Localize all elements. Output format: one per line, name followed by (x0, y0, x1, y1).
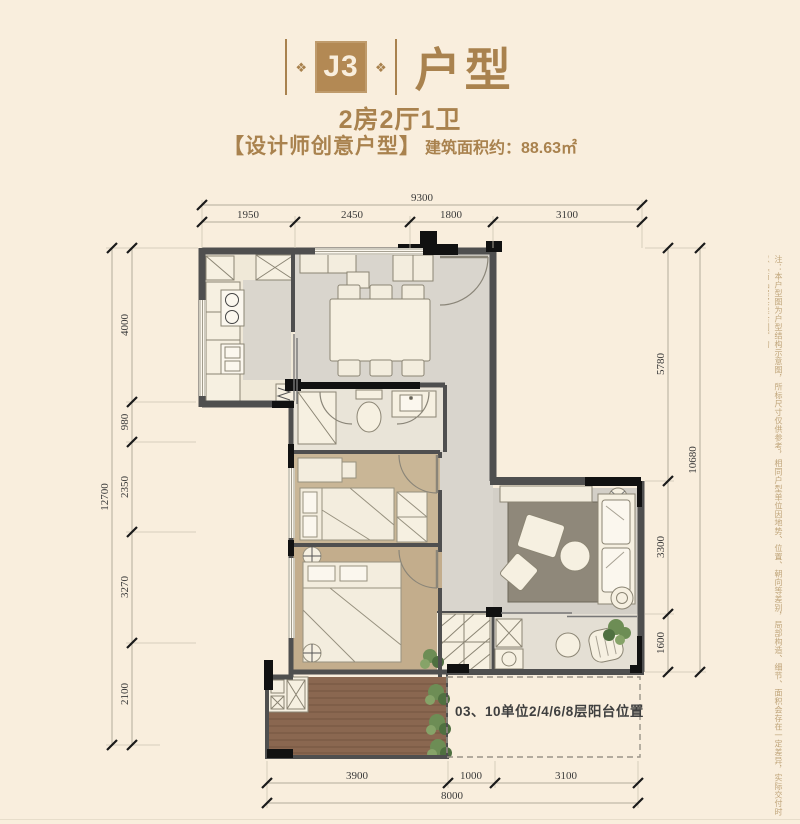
dim-bottom-seg3: 3100 (555, 770, 578, 782)
dim-bottom-seg2: 1000 (460, 770, 483, 782)
dim-right-seg2: 3300 (655, 536, 667, 559)
dim-bottom-seg1: 3900 (346, 770, 369, 782)
balcony-note: 03、10单位2/4/6/8层阳台位置 (455, 703, 644, 719)
master-bedroom-furniture (303, 547, 401, 662)
dim-left-seg2: 980 (119, 413, 131, 430)
floorplan-page: ❖ J3 ❖ 户型 2房2厅1卫 【设计师创意户型】 建筑面积约：88.63㎡ (0, 0, 800, 824)
dim-bottom-total: 8000 (441, 790, 464, 802)
living-room-furniture (499, 486, 635, 609)
dim-top-seg4: 3100 (556, 209, 579, 221)
dim-right-total: 10680 (687, 446, 699, 474)
dim-top-seg2: 2450 (341, 209, 364, 221)
dim-left-total: 12700 (99, 483, 111, 511)
dim-right-seg1: 5780 (655, 353, 667, 376)
equipment-platform (268, 677, 308, 712)
dim-left-seg3: 2350 (119, 476, 131, 499)
dim-top-seg3: 1800 (440, 209, 463, 221)
dim-top-total: 9300 (411, 192, 434, 204)
floorplan-drawing: 03、10单位2/4/6/8层阳台位置 (0, 0, 800, 824)
dim-left-seg5: 2100 (119, 683, 131, 706)
dim-left-seg1: 4000 (119, 314, 131, 337)
dim-left-seg4: 3270 (119, 576, 131, 599)
bottom-divider (0, 819, 800, 820)
disclaimer-note: 注：本户型图为户型结构示意图，所标尺寸仅供参考，相同户型单位因地势、位置、朝向等… (768, 255, 784, 817)
storage-cabinet (439, 614, 490, 670)
dim-right-seg3: 1600 (655, 632, 667, 655)
dim-top-seg1: 1950 (237, 209, 260, 221)
